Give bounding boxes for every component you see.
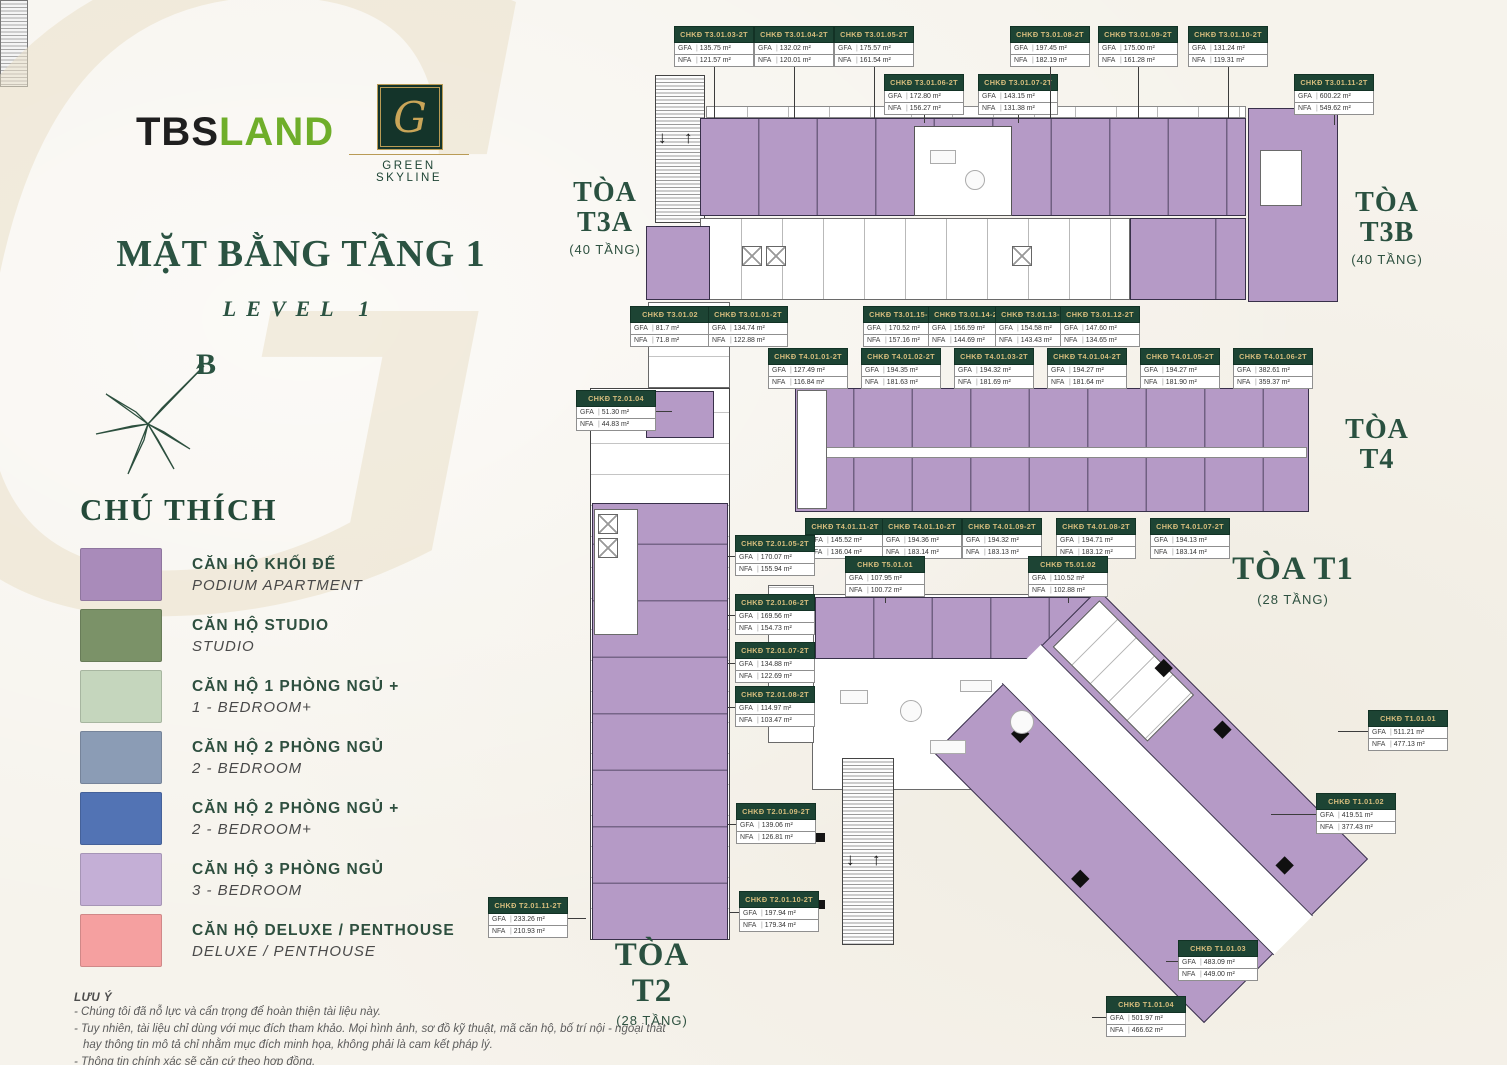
green-skyline-name: GREEN SKYLINE xyxy=(349,154,469,184)
building-floors: (28 TẦNG) xyxy=(1228,592,1358,607)
gfa-key: GFA xyxy=(958,367,974,374)
unit-id: CHKĐ T4.01.01-2T xyxy=(768,348,848,365)
unit-callout[interactable]: CHKĐ T2.01.08-2T GFA | 114.97 m² NFA | 1… xyxy=(735,686,815,727)
gfa-key: GFA xyxy=(1237,367,1253,374)
legend-swatch xyxy=(80,731,162,784)
unit-gfa-row: GFA | 600.22 m² xyxy=(1294,91,1374,103)
ramp-down-arrow-icon: ↓ xyxy=(658,128,667,148)
legend-label-vi: CĂN HỘ KHỐI ĐẾ xyxy=(192,556,363,574)
unit-gfa-row: GFA | 132.02 m² xyxy=(754,43,834,55)
gfa-value: 194.71 m² xyxy=(1082,537,1113,544)
unit-gfa-row: GFA | 107.95 m² xyxy=(845,573,925,585)
building-name: TÒAT3A (40 TẦNG) xyxy=(560,178,650,257)
building-name-line: T4 xyxy=(1332,445,1422,475)
t2-top-unit xyxy=(646,391,714,438)
nfa-key: NFA xyxy=(740,834,756,841)
gfa-value: 131.24 m² xyxy=(1214,45,1245,52)
unit-callout[interactable]: CHKĐ T2.01.07-2T GFA | 134.88 m² NFA | 1… xyxy=(735,642,815,683)
nfa-value: 102.88 m² xyxy=(1054,587,1085,594)
disclaimer-title: LƯU Ý xyxy=(74,992,754,1004)
tbs-land-logo: TBSLAND xyxy=(136,110,334,155)
nfa-key: NFA xyxy=(982,105,998,112)
unit-id: CHKĐ T3.01.11-2T xyxy=(1294,74,1374,91)
unit-nfa-row: NFA | 210.93 m² xyxy=(488,926,568,938)
gfa-value: 110.52 m² xyxy=(1054,575,1085,582)
unit-gfa-row: GFA | 127.49 m² xyxy=(768,365,848,377)
gfa-key: GFA xyxy=(739,554,755,561)
gfa-key: GFA xyxy=(838,45,854,52)
gfa-value: 511.21 m² xyxy=(1394,729,1425,736)
nfa-key: NFA xyxy=(1110,1027,1126,1034)
gfa-key: GFA xyxy=(932,325,948,332)
unit-callout[interactable]: CHKĐ T2.01.11-2T GFA | 233.26 m² NFA | 2… xyxy=(488,897,568,938)
building-name-line: T3B xyxy=(1342,218,1432,248)
unit-id: CHKĐ T5.01.01 xyxy=(845,556,925,573)
nfa-value: 377.43 m² xyxy=(1342,824,1373,831)
land-logo-text: LAND xyxy=(219,110,334,154)
disclaimer-line: - Thông tin chính xác sẽ căn cứ theo hợp… xyxy=(74,1054,754,1065)
building-floors: (40 TẦNG) xyxy=(1342,252,1432,267)
unit-id: CHKĐ T1.01.04 xyxy=(1106,996,1186,1013)
unit-nfa-row: NFA | 181.69 m² xyxy=(954,377,1034,389)
unit-gfa-row: GFA | 175.00 m² xyxy=(1098,43,1178,55)
gfa-key: GFA xyxy=(739,705,755,712)
unit-callout[interactable]: CHKĐ T4.01.10-2T GFA | 194.36 m² NFA | 1… xyxy=(882,518,962,559)
column-marker xyxy=(816,833,825,842)
unit-callout[interactable]: CHKĐ T3.01.05-2T GFA | 175.57 m² NFA | 1… xyxy=(834,26,914,67)
unit-nfa-row: NFA | 131.38 m² xyxy=(978,103,1058,115)
unit-id: CHKĐ T3.01.06-2T xyxy=(884,74,964,91)
unit-id: CHKĐ T3.01.03-2T xyxy=(674,26,754,43)
unit-callout[interactable]: CHKĐ T3.01.12-2T GFA | 147.60 m² NFA | 1… xyxy=(1060,306,1140,347)
nfa-key: NFA xyxy=(1182,971,1198,978)
unit-gfa-row: GFA | 134.74 m² xyxy=(708,323,788,335)
legend-item: CĂN HỘ 2 PHÒNG NGỦ 2 - BEDROOM xyxy=(80,731,455,784)
unit-id: CHKĐ T2.01.10-2T xyxy=(739,891,819,908)
disclaimer-line: - Chúng tôi đã nỗ lực và cẩn trọng để ho… xyxy=(74,1004,754,1021)
unit-id: CHKĐ T4.01.06-2T xyxy=(1233,348,1313,365)
nfa-value: 144.69 m² xyxy=(954,337,985,344)
gfa-key: GFA xyxy=(999,325,1015,332)
unit-callout[interactable]: CHKĐ T2.01.09-2T GFA | 139.06 m² NFA | 1… xyxy=(736,803,816,844)
unit-nfa-row: NFA | 121.57 m² xyxy=(674,55,754,67)
compass-north-label: B xyxy=(196,348,216,382)
unit-nfa-row: NFA | 71.8 m² xyxy=(630,335,710,347)
unit-gfa-row: GFA | 172.80 m² xyxy=(884,91,964,103)
gfa-value: 382.61 m² xyxy=(1259,367,1290,374)
unit-callout[interactable]: CHKĐ T3.01.08-2T GFA | 197.45 m² NFA | 1… xyxy=(1010,26,1090,67)
unit-id: CHKĐ T3.01.04-2T xyxy=(754,26,834,43)
gfa-key: GFA xyxy=(1192,45,1208,52)
legend-label-vi: CĂN HỘ 2 PHÒNG NGỦ + xyxy=(192,800,399,818)
disclaimer-line: hay thông tin mô tả chỉ nhằm mục đích mi… xyxy=(74,1037,754,1054)
gfa-value: 419.51 m² xyxy=(1342,812,1373,819)
nfa-key: NFA xyxy=(1064,337,1080,344)
nfa-value: 136.04 m² xyxy=(831,549,862,556)
unit-gfa-row: GFA | 483.09 m² xyxy=(1178,957,1258,969)
unit-callout[interactable]: CHKĐ T4.01.06-2T GFA | 382.61 m² NFA | 3… xyxy=(1233,348,1313,389)
unit-callout[interactable]: CHKĐ T3.01.02 GFA | 81.7 m² NFA | 71.8 m… xyxy=(630,306,710,347)
gfa-key: GFA xyxy=(1144,367,1160,374)
t4-corridor xyxy=(797,447,1307,458)
ramp-down-arrow-icon: ↓ xyxy=(846,850,855,870)
unit-nfa-row: NFA | 181.63 m² xyxy=(861,377,941,389)
elevator-icon xyxy=(598,538,618,558)
unit-id: CHKĐ T4.01.09-2T xyxy=(962,518,1042,535)
gfa-value: 501.97 m² xyxy=(1132,1015,1163,1022)
gfa-value: 194.35 m² xyxy=(887,367,918,374)
unit-nfa-row: NFA | 161.54 m² xyxy=(834,55,914,67)
gfa-key: GFA xyxy=(1014,45,1030,52)
unit-nfa-row: NFA | 182.19 m² xyxy=(1010,55,1090,67)
gfa-key: GFA xyxy=(886,537,902,544)
unit-gfa-row: GFA | 194.35 m² xyxy=(861,365,941,377)
unit-nfa-row: NFA | 156.27 m² xyxy=(884,103,964,115)
unit-gfa-row: GFA | 194.27 m² xyxy=(1047,365,1127,377)
nfa-key: NFA xyxy=(1051,379,1067,386)
unit-gfa-row: GFA | 169.56 m² xyxy=(735,611,815,623)
gfa-value: 134.88 m² xyxy=(761,661,792,668)
unit-callout[interactable]: CHKĐ T3.01.10-2T GFA | 131.24 m² NFA | 1… xyxy=(1188,26,1268,67)
unit-nfa-row: NFA | 181.90 m² xyxy=(1140,377,1220,389)
nfa-key: NFA xyxy=(999,337,1015,344)
disclaimer-line: - Tuy nhiên, tài liệu chỉ dùng với mục đ… xyxy=(74,1021,754,1038)
unit-callout[interactable]: CHKĐ T1.01.02 GFA | 419.51 m² NFA | 377.… xyxy=(1316,793,1396,834)
unit-callout[interactable]: CHKĐ T4.01.04-2T GFA | 194.27 m² NFA | 1… xyxy=(1047,348,1127,389)
gfa-key: GFA xyxy=(982,93,998,100)
gfa-value: 81.7 m² xyxy=(656,325,679,332)
unit-nfa-row: NFA | 377.43 m² xyxy=(1316,822,1396,834)
nfa-value: 103.47 m² xyxy=(761,717,792,724)
elevator-icon xyxy=(598,514,618,534)
nfa-key: NFA xyxy=(678,57,694,64)
unit-callout[interactable]: CHKĐ T3.01.09-2T GFA | 175.00 m² NFA | 1… xyxy=(1098,26,1178,67)
unit-callout[interactable]: CHKĐ T4.01.07-2T GFA | 194.13 m² NFA | 1… xyxy=(1150,518,1230,559)
legend-label-vi: CĂN HỘ 2 PHÒNG NGỦ xyxy=(192,739,384,757)
page-subtitle: LEVEL 1 xyxy=(86,296,516,322)
nfa-key: NFA xyxy=(1154,549,1170,556)
unit-callout[interactable]: CHKĐ T4.01.11-2T GFA | 145.52 m² NFA | 1… xyxy=(805,518,885,559)
unit-id: CHKĐ T1.01.01 xyxy=(1368,710,1448,727)
nfa-key: NFA xyxy=(1144,379,1160,386)
unit-gfa-row: GFA | 51.30 m² xyxy=(576,407,656,419)
gfa-key: GFA xyxy=(966,537,982,544)
unit-id: CHKĐ T3.01.02 xyxy=(630,306,710,323)
unit-nfa-row: NFA | 466.62 m² xyxy=(1106,1025,1186,1037)
nfa-key: NFA xyxy=(1014,57,1030,64)
unit-callout[interactable]: CHKĐ T4.01.05-2T GFA | 194.27 m² NFA | 1… xyxy=(1140,348,1220,389)
gfa-key: GFA xyxy=(849,575,865,582)
legend-swatch xyxy=(80,609,162,662)
nfa-key: NFA xyxy=(739,625,755,632)
nfa-key: NFA xyxy=(966,549,982,556)
legend-item: CĂN HỘ DELUXE / PENTHOUSE DELUXE / PENTH… xyxy=(80,914,455,967)
unit-gfa-row: GFA | 81.7 m² xyxy=(630,323,710,335)
gfa-key: GFA xyxy=(1051,367,1067,374)
unit-gfa-row: GFA | 194.27 m² xyxy=(1140,365,1220,377)
gfa-value: 194.32 m² xyxy=(988,537,1019,544)
legend-label-en: 1 - BEDROOM+ xyxy=(192,699,399,716)
unit-nfa-row: NFA | 116.84 m² xyxy=(768,377,848,389)
gfa-value: 169.56 m² xyxy=(761,613,792,620)
nfa-value: 210.93 m² xyxy=(514,928,545,935)
unit-id: CHKĐ T2.01.04 xyxy=(576,390,656,407)
unit-gfa-row: GFA | 194.71 m² xyxy=(1056,535,1136,547)
nfa-key: NFA xyxy=(888,105,904,112)
nfa-value: 116.84 m² xyxy=(794,379,825,386)
unit-id: CHKĐ T1.01.02 xyxy=(1316,793,1396,810)
elevator-icon xyxy=(742,246,762,266)
legend-label-en: PODIUM APARTMENT xyxy=(192,577,363,594)
nfa-value: 182.19 m² xyxy=(1036,57,1067,64)
unit-nfa-row: NFA | 126.81 m² xyxy=(736,832,816,844)
unit-gfa-row: GFA | 382.61 m² xyxy=(1233,365,1313,377)
unit-gfa-row: GFA | 233.26 m² xyxy=(488,914,568,926)
unit-id: CHKĐ T3.01.09-2T xyxy=(1098,26,1178,43)
nfa-value: 359.37 m² xyxy=(1259,379,1290,386)
unit-callout[interactable]: CHKĐ T4.01.01-2T GFA | 127.49 m² NFA | 1… xyxy=(768,348,848,389)
nfa-key: NFA xyxy=(712,337,728,344)
unit-gfa-row: GFA | 194.32 m² xyxy=(954,365,1034,377)
nfa-key: NFA xyxy=(739,566,755,573)
unit-id: CHKĐ T3.01.01-2T xyxy=(708,306,788,323)
gfa-key: GFA xyxy=(739,661,755,668)
gfa-value: 197.94 m² xyxy=(765,910,796,917)
gfa-key: GFA xyxy=(1182,959,1198,966)
nfa-key: NFA xyxy=(865,379,881,386)
unit-gfa-row: GFA | 131.24 m² xyxy=(1188,43,1268,55)
unit-gfa-row: GFA | 145.52 m² xyxy=(805,535,885,547)
unit-callout[interactable]: CHKĐ T2.01.06-2T GFA | 169.56 m² NFA | 1… xyxy=(735,594,815,635)
lobby-furniture xyxy=(930,150,956,164)
unit-nfa-row: NFA | 119.31 m² xyxy=(1188,55,1268,67)
gfa-value: 194.27 m² xyxy=(1166,367,1197,374)
gfa-key: GFA xyxy=(712,325,728,332)
gfa-value: 107.95 m² xyxy=(871,575,902,582)
gfa-key: GFA xyxy=(758,45,774,52)
gfa-value: 135.75 m² xyxy=(700,45,731,52)
disclaimer: LƯU Ý - Chúng tôi đã nỗ lực và cẩn trọng… xyxy=(74,992,754,1065)
legend-label-en: DELUXE / PENTHOUSE xyxy=(192,943,455,960)
unit-id: CHKĐ T2.01.09-2T xyxy=(736,803,816,820)
unit-callout[interactable]: CHKĐ T3.01.03-2T GFA | 135.75 m² NFA | 1… xyxy=(674,26,754,67)
floorplan-canvas: G TBSLAND G GREEN SKYLINE MẶT BẰNG TẦNG … xyxy=(0,0,1507,1065)
gfa-value: 194.32 m² xyxy=(980,367,1011,374)
t3-core-band xyxy=(700,218,1130,300)
legend-label-vi: CĂN HỘ STUDIO xyxy=(192,617,329,635)
nfa-value: 449.00 m² xyxy=(1204,971,1235,978)
nfa-value: 183.14 m² xyxy=(1176,549,1207,556)
t3b-stair-hatch xyxy=(0,0,28,87)
nfa-value: 126.81 m² xyxy=(762,834,793,841)
unit-callout[interactable]: CHKĐ T5.01.02 GFA | 110.52 m² NFA | 102.… xyxy=(1028,556,1108,597)
unit-nfa-row: NFA | 103.47 m² xyxy=(735,715,815,727)
gfa-value: 143.15 m² xyxy=(1004,93,1035,100)
gfa-value: 139.06 m² xyxy=(762,822,793,829)
nfa-key: NFA xyxy=(1032,587,1048,594)
unit-gfa-row: GFA | 511.21 m² xyxy=(1368,727,1448,739)
unit-callout[interactable]: CHKĐ T3.01.06-2T GFA | 172.80 m² NFA | 1… xyxy=(884,74,964,115)
unit-id: CHKĐ T3.01.08-2T xyxy=(1010,26,1090,43)
unit-callout[interactable]: CHKĐ T3.01.07-2T GFA | 143.15 m² NFA | 1… xyxy=(978,74,1058,115)
nfa-value: 181.90 m² xyxy=(1166,379,1197,386)
nfa-key: NFA xyxy=(1060,549,1076,556)
gfa-key: GFA xyxy=(867,325,883,332)
unit-gfa-row: GFA | 147.60 m² xyxy=(1060,323,1140,335)
unit-gfa-row: GFA | 139.06 m² xyxy=(736,820,816,832)
gfa-key: GFA xyxy=(743,910,759,917)
legend-item: CĂN HỘ KHỐI ĐẾ PODIUM APARTMENT xyxy=(80,548,455,601)
gfa-key: GFA xyxy=(1032,575,1048,582)
unit-gfa-row: GFA | 194.13 m² xyxy=(1150,535,1230,547)
unit-id: CHKĐ T2.01.08-2T xyxy=(735,686,815,703)
unit-nfa-row: NFA | 154.73 m² xyxy=(735,623,815,635)
unit-gfa-row: GFA | 175.57 m² xyxy=(834,43,914,55)
gfa-value: 194.36 m² xyxy=(908,537,939,544)
nfa-key: NFA xyxy=(739,717,755,724)
nfa-key: NFA xyxy=(1192,57,1208,64)
legend-label-vi: CĂN HỘ DELUXE / PENTHOUSE xyxy=(192,922,455,940)
building-name-line: T3A xyxy=(560,208,650,238)
building-name-line: TÒA T1 xyxy=(1228,552,1358,588)
gfa-key: GFA xyxy=(1154,537,1170,544)
unit-nfa-row: NFA | 120.01 m² xyxy=(754,55,834,67)
unit-callout[interactable]: CHKĐ T1.01.03 GFA | 483.09 m² NFA | 449.… xyxy=(1178,940,1258,981)
nfa-key: NFA xyxy=(743,922,759,929)
building-name-line: TÒA xyxy=(1332,415,1422,445)
building-floors: (40 TẦNG) xyxy=(560,242,650,257)
nfa-key: NFA xyxy=(932,337,948,344)
amenity-furniture xyxy=(1010,710,1034,734)
nfa-value: 44.83 m² xyxy=(602,421,629,428)
nfa-key: NFA xyxy=(849,587,865,594)
legend-item: CĂN HỘ 3 PHÒNG NGỦ 3 - BEDROOM xyxy=(80,853,455,906)
gfa-key: GFA xyxy=(580,409,596,416)
unit-gfa-row: GFA | 197.94 m² xyxy=(739,908,819,920)
legend-item: CĂN HỘ 1 PHÒNG NGỦ + 1 - BEDROOM+ xyxy=(80,670,455,723)
unit-gfa-row: GFA | 419.51 m² xyxy=(1316,810,1396,822)
t3-left-unit xyxy=(646,226,710,300)
unit-callout[interactable]: CHKĐ T2.01.05-2T GFA | 170.07 m² NFA | 1… xyxy=(735,535,815,576)
gfa-key: GFA xyxy=(1298,93,1314,100)
t3b-core xyxy=(1260,150,1302,206)
unit-nfa-row: NFA | 359.37 m² xyxy=(1233,377,1313,389)
unit-callout[interactable]: CHKĐ T3.01.11-2T GFA | 600.22 m² NFA | 5… xyxy=(1294,74,1374,115)
unit-id: CHKĐ T4.01.04-2T xyxy=(1047,348,1127,365)
unit-gfa-row: GFA | 170.07 m² xyxy=(735,552,815,564)
unit-callout[interactable]: CHKĐ T4.01.08-2T GFA | 194.71 m² NFA | 1… xyxy=(1056,518,1136,559)
building-name: TÒAT3B (40 TẦNG) xyxy=(1342,188,1432,267)
amenity-furniture xyxy=(930,740,966,754)
gfa-value: 175.57 m² xyxy=(860,45,891,52)
nfa-value: 183.14 m² xyxy=(908,549,939,556)
nfa-key: NFA xyxy=(492,928,508,935)
legend-label-en: 3 - BEDROOM xyxy=(192,882,384,899)
nfa-value: 183.12 m² xyxy=(1082,549,1113,556)
unit-id: CHKĐ T2.01.11-2T xyxy=(488,897,568,914)
gfa-value: 233.26 m² xyxy=(514,916,545,923)
gfa-key: GFA xyxy=(678,45,694,52)
unit-id: CHKĐ T4.01.07-2T xyxy=(1150,518,1230,535)
legend-swatch xyxy=(80,914,162,967)
nfa-value: 131.38 m² xyxy=(1004,105,1035,112)
gfa-key: GFA xyxy=(772,367,788,374)
legend-item: CĂN HỘ 2 PHÒNG NGỦ + 2 - BEDROOM+ xyxy=(80,792,455,845)
nfa-key: NFA xyxy=(958,379,974,386)
unit-id: CHKĐ T2.01.07-2T xyxy=(735,642,815,659)
unit-nfa-row: NFA | 100.72 m² xyxy=(845,585,925,597)
gfa-value: 132.02 m² xyxy=(780,45,811,52)
unit-callout[interactable]: CHKĐ T3.01.04-2T GFA | 132.02 m² NFA | 1… xyxy=(754,26,834,67)
nfa-value: 183.13 m² xyxy=(988,549,1019,556)
gfa-key: GFA xyxy=(1372,729,1388,736)
nfa-value: 156.27 m² xyxy=(910,105,941,112)
legend-label-vi: CĂN HỘ 1 PHÒNG NGỦ + xyxy=(192,678,399,696)
unit-id: CHKĐ T3.01.05-2T xyxy=(834,26,914,43)
amenity-furniture xyxy=(960,680,992,692)
unit-gfa-row: GFA | 143.15 m² xyxy=(978,91,1058,103)
nfa-value: 155.94 m² xyxy=(761,566,792,573)
unit-callout[interactable]: CHKĐ T4.01.09-2T GFA | 194.32 m² NFA | 1… xyxy=(962,518,1042,559)
gfa-key: GFA xyxy=(1320,812,1336,819)
legend-swatch xyxy=(80,670,162,723)
unit-callout[interactable]: CHKĐ T5.01.01 GFA | 107.95 m² NFA | 100.… xyxy=(845,556,925,597)
nfa-value: 143.43 m² xyxy=(1021,337,1052,344)
unit-callout[interactable]: CHKĐ T2.01.10-2T GFA | 197.94 m² NFA | 1… xyxy=(739,891,819,932)
unit-id: CHKĐ T3.01.12-2T xyxy=(1060,306,1140,323)
unit-nfa-row: NFA | 102.88 m² xyxy=(1028,585,1108,597)
legend-title: CHÚ THÍCH xyxy=(80,492,277,528)
unit-id: CHKĐ T1.01.03 xyxy=(1178,940,1258,957)
unit-id: CHKĐ T4.01.10-2T xyxy=(882,518,962,535)
nfa-key: NFA xyxy=(838,57,854,64)
ramp-up-arrow-icon: ↑ xyxy=(872,850,881,870)
building-name-line: TÒA xyxy=(560,178,650,208)
nfa-value: 157.16 m² xyxy=(889,337,920,344)
nfa-value: 119.31 m² xyxy=(1214,57,1245,64)
t3-lobby xyxy=(914,126,1012,216)
nfa-value: 549.62 m² xyxy=(1320,105,1351,112)
nfa-value: 121.57 m² xyxy=(700,57,731,64)
unit-callout[interactable]: CHKĐ T4.01.03-2T GFA | 194.32 m² NFA | 1… xyxy=(954,348,1034,389)
unit-callout[interactable]: CHKĐ T4.01.02-2T GFA | 194.35 m² NFA | 1… xyxy=(861,348,941,389)
unit-callout[interactable]: CHKĐ T3.01.01-2T GFA | 134.74 m² NFA | 1… xyxy=(708,306,788,347)
nfa-value: 161.54 m² xyxy=(860,57,891,64)
nfa-key: NFA xyxy=(867,337,883,344)
gfa-value: 175.00 m² xyxy=(1124,45,1155,52)
unit-callout[interactable]: CHKĐ T1.01.04 GFA | 501.97 m² NFA | 466.… xyxy=(1106,996,1186,1037)
gfa-value: 194.27 m² xyxy=(1073,367,1104,374)
amenity-furniture xyxy=(840,690,868,704)
nfa-key: NFA xyxy=(772,379,788,386)
unit-callout[interactable]: CHKĐ T1.01.01 GFA | 511.21 m² NFA | 477.… xyxy=(1368,710,1448,751)
unit-id: CHKĐ T4.01.11-2T xyxy=(805,518,885,535)
gfa-value: 134.74 m² xyxy=(734,325,765,332)
unit-gfa-row: GFA | 197.45 m² xyxy=(1010,43,1090,55)
legend-swatch xyxy=(80,548,162,601)
gfa-key: GFA xyxy=(740,822,756,829)
page-title: MẶT BẰNG TẦNG 1 xyxy=(86,232,516,276)
nfa-key: NFA xyxy=(634,337,650,344)
unit-gfa-row: GFA | 501.97 m² xyxy=(1106,1013,1186,1025)
unit-nfa-row: NFA | 179.34 m² xyxy=(739,920,819,932)
legend-label-vi: CĂN HỘ 3 PHÒNG NGỦ xyxy=(192,861,384,879)
building-name: TÒAT4 xyxy=(1332,415,1422,475)
unit-id: CHKĐ T2.01.05-2T xyxy=(735,535,815,552)
gfa-value: 170.07 m² xyxy=(761,554,792,561)
nfa-value: 181.63 m² xyxy=(887,379,918,386)
unit-callout[interactable]: CHKĐ T2.01.04 GFA | 51.30 m² NFA | 44.83… xyxy=(576,390,656,431)
